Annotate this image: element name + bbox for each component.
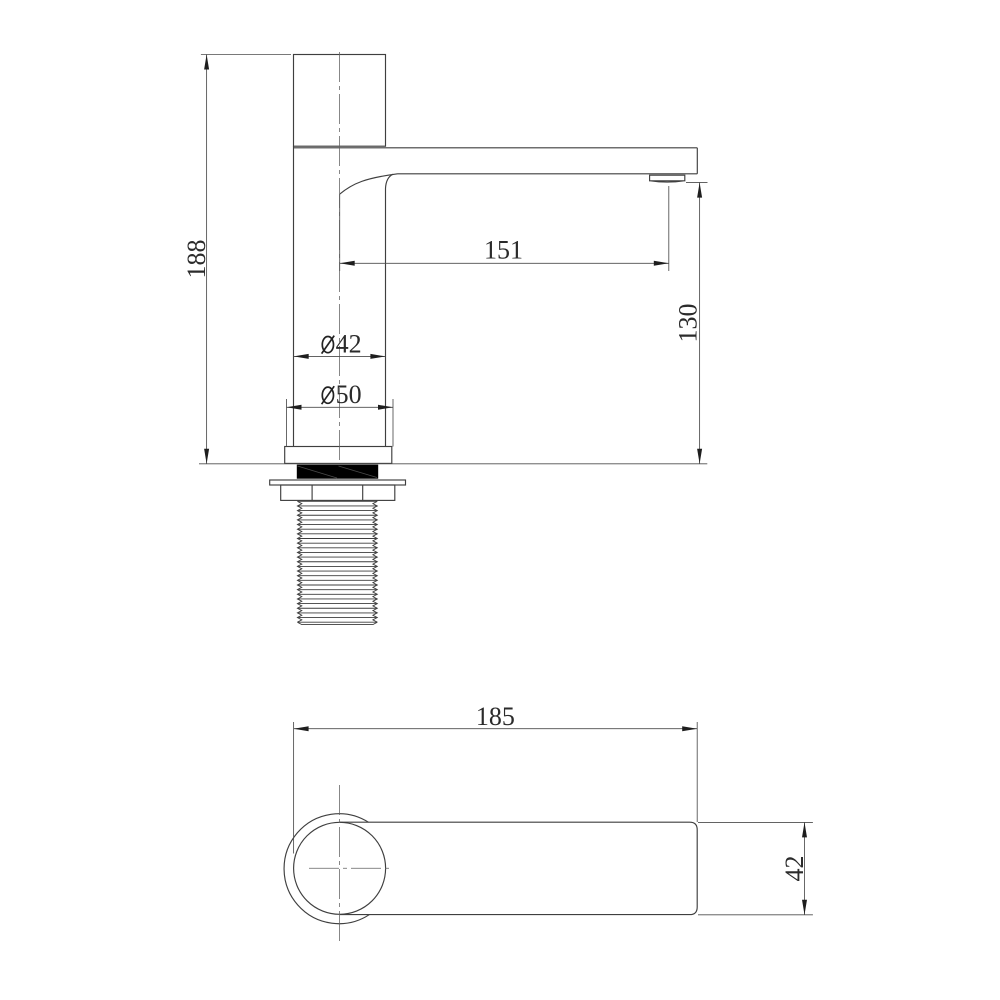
svg-text:188: 188: [182, 240, 211, 279]
svg-text:130: 130: [673, 304, 702, 343]
svg-text:42: 42: [336, 329, 362, 358]
svg-text:151: 151: [484, 236, 523, 265]
svg-text:42: 42: [780, 856, 809, 882]
svg-text:50: 50: [336, 380, 362, 409]
svg-text:185: 185: [476, 702, 515, 731]
